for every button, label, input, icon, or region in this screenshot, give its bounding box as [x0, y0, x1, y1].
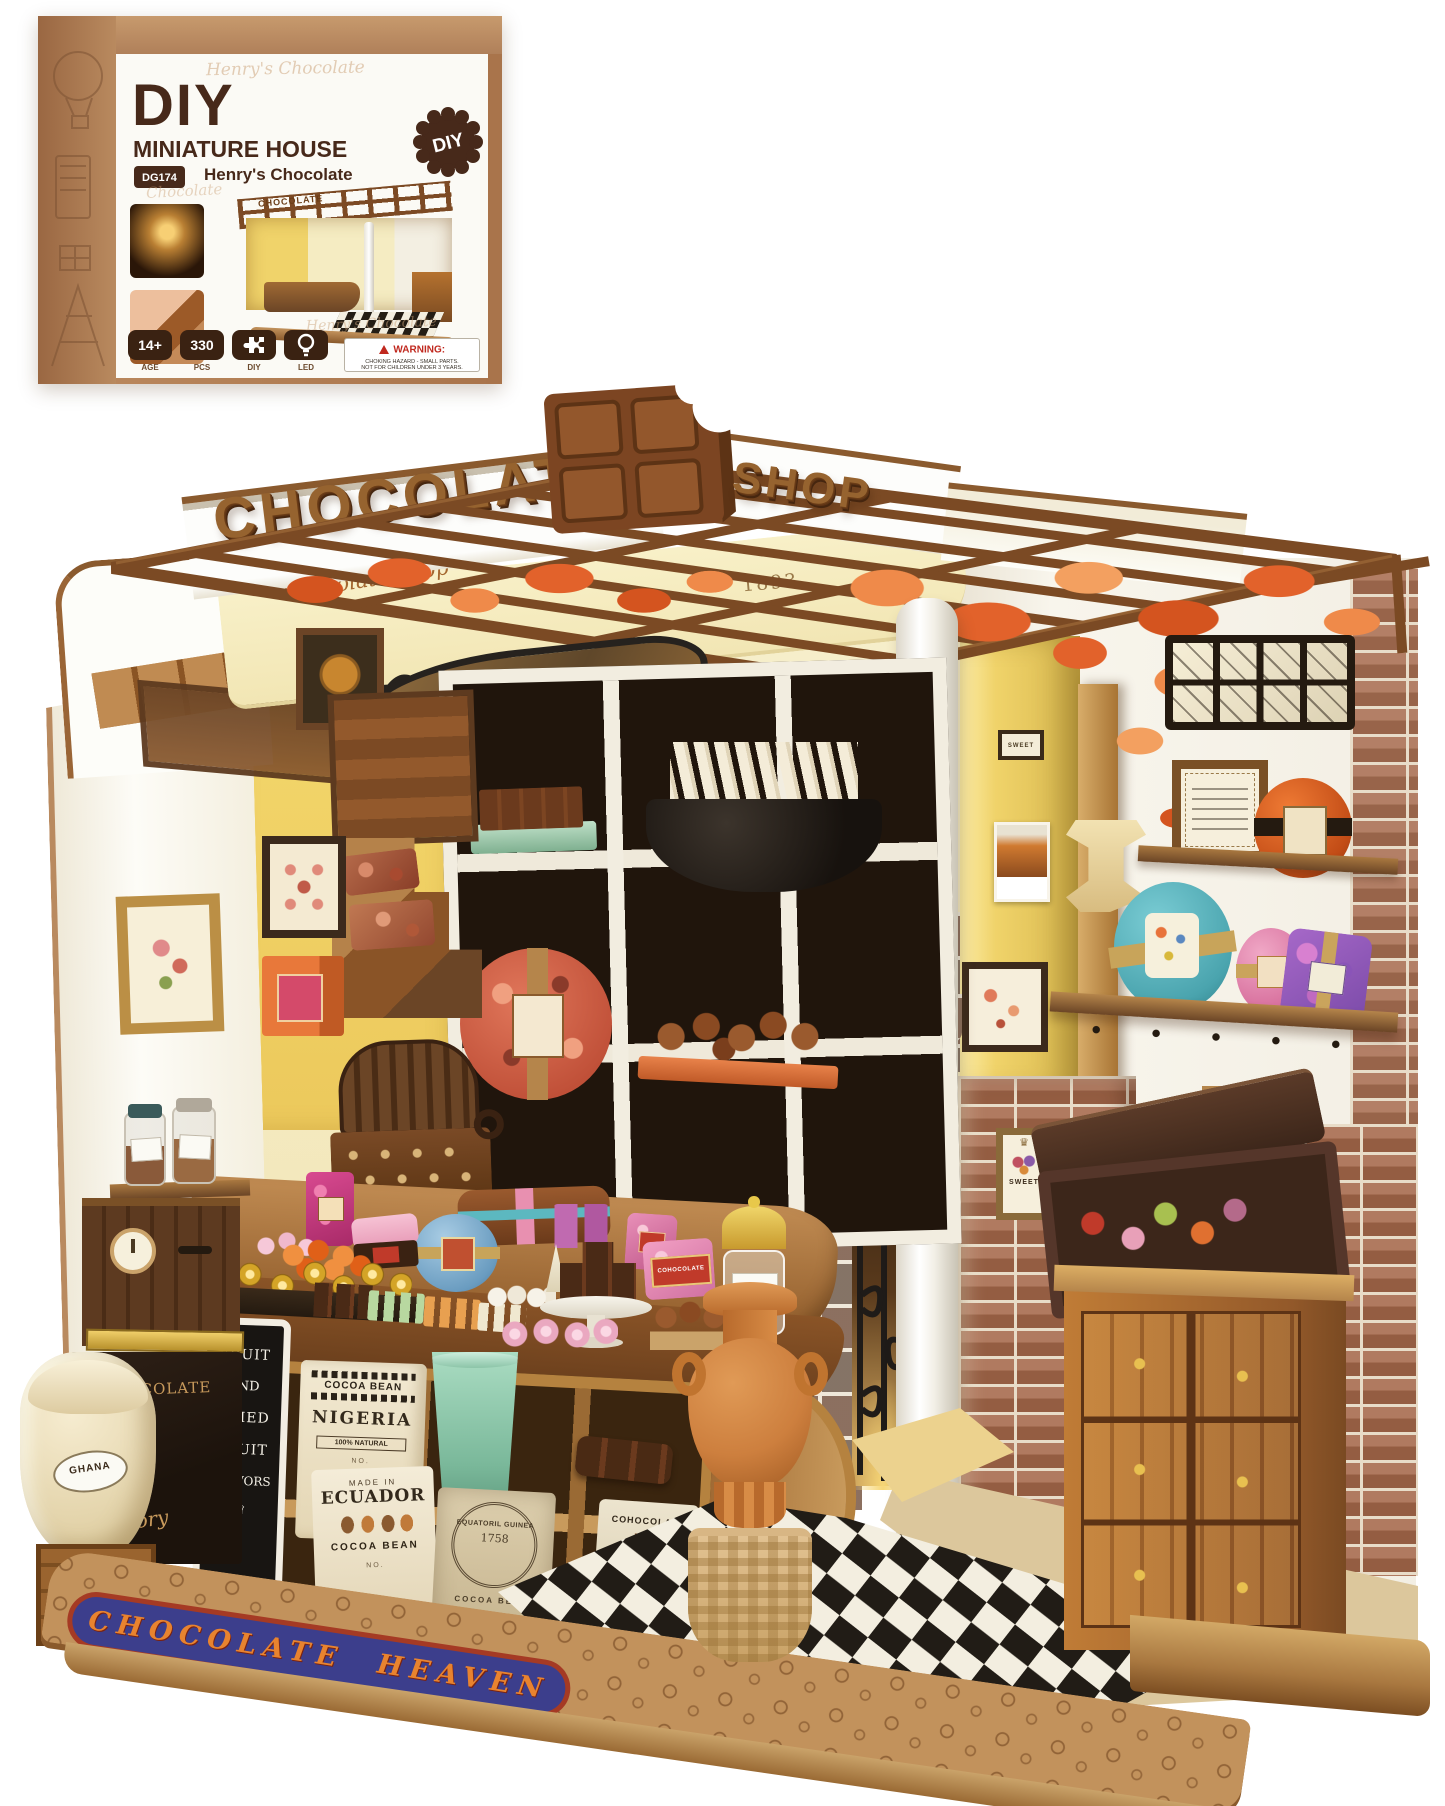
cabinet-drawers	[1081, 1311, 1301, 1627]
urn-foot	[714, 1482, 785, 1528]
terracotta-urn	[676, 1282, 824, 1552]
urn-body	[688, 1338, 812, 1488]
urn-handle-right	[794, 1352, 828, 1396]
bonbons	[1062, 1171, 1263, 1278]
product-photo: Henry's Chocolate DIY MINIATURE HOUSE DG…	[0, 0, 1445, 1806]
drawer-cabinet	[1064, 1282, 1346, 1650]
urn-handle-left	[672, 1352, 706, 1396]
